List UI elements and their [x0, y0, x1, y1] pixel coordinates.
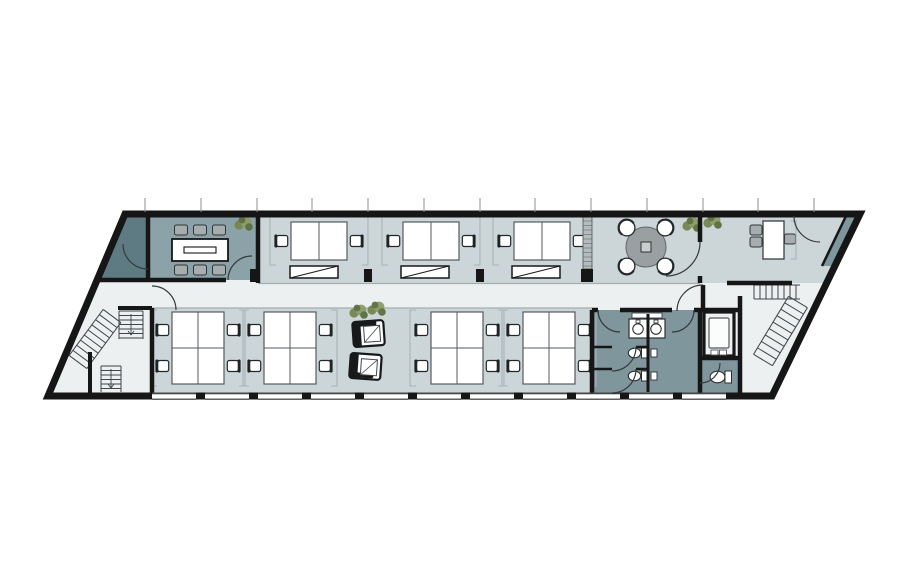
elevator-car	[709, 318, 729, 348]
plant-foliage	[372, 302, 379, 309]
table-center	[641, 242, 651, 252]
toilet	[628, 371, 647, 381]
office-chair	[389, 236, 400, 247]
window	[576, 393, 620, 400]
elevator-door	[711, 350, 718, 355]
office-chair	[319, 325, 330, 336]
plant-foliage	[354, 305, 361, 312]
office-chair	[578, 325, 589, 336]
round-table-group	[619, 220, 674, 275]
office-chair	[486, 325, 497, 336]
sink-basin	[651, 324, 661, 334]
office-chair	[158, 325, 169, 336]
chair	[194, 265, 207, 275]
window	[629, 393, 673, 400]
office-chair	[417, 325, 428, 336]
cistern	[725, 371, 732, 383]
plant-foliage	[378, 308, 386, 316]
facade-windows	[152, 393, 726, 400]
sideboard	[290, 266, 338, 278]
sink-basin	[633, 324, 643, 334]
wall-shelf	[583, 217, 592, 269]
sideboard	[401, 266, 449, 278]
elevator	[704, 312, 734, 356]
sideboard	[512, 266, 560, 278]
office-chair	[227, 361, 238, 372]
plant-foliage	[714, 221, 722, 229]
office-chair	[350, 236, 361, 247]
office-chair	[509, 325, 520, 336]
window	[152, 393, 196, 400]
cistern	[642, 348, 648, 358]
office-chair	[500, 236, 511, 247]
plant-foliage	[360, 311, 368, 319]
cistern	[642, 371, 648, 381]
faucet	[654, 320, 658, 323]
office-chair	[319, 361, 330, 372]
chair	[175, 225, 188, 235]
office-chair	[250, 325, 261, 336]
window	[417, 393, 461, 400]
plant-foliage	[687, 218, 694, 225]
wall-jamb	[476, 269, 484, 282]
office-chair	[158, 361, 169, 372]
toilet	[628, 348, 647, 358]
window	[682, 393, 726, 400]
office-chair	[486, 361, 497, 372]
office-chair	[462, 236, 473, 247]
floor-plan-svg	[0, 0, 911, 583]
conference-table-group	[172, 225, 228, 275]
desk	[763, 221, 784, 259]
chair	[175, 265, 188, 275]
window	[470, 393, 514, 400]
plant-foliage	[245, 223, 253, 231]
conference-table	[172, 239, 228, 261]
accessible-toilet	[710, 371, 731, 383]
wall-jamb	[581, 269, 593, 282]
chair	[213, 265, 226, 275]
wall-fixture	[651, 372, 657, 380]
window	[523, 393, 567, 400]
floorplan-stage	[0, 0, 911, 583]
lounge-chair	[349, 353, 382, 380]
office-chair	[227, 325, 238, 336]
window	[311, 393, 355, 400]
window	[258, 393, 302, 400]
window	[205, 393, 249, 400]
window	[364, 393, 408, 400]
wall-fixture	[651, 349, 657, 357]
elevator-door	[720, 350, 727, 355]
faucet	[636, 320, 640, 323]
lounge-chair	[352, 320, 385, 347]
plant-foliage	[239, 217, 246, 224]
office-chair	[417, 361, 428, 372]
office-chair	[509, 361, 520, 372]
chair	[785, 234, 796, 244]
chair	[750, 225, 762, 235]
chair	[194, 225, 207, 235]
wall-jamb	[364, 269, 372, 282]
chair	[213, 225, 226, 235]
office-chair	[250, 361, 261, 372]
office-chair	[578, 361, 589, 372]
office-chair	[277, 236, 288, 247]
chair	[750, 237, 762, 247]
